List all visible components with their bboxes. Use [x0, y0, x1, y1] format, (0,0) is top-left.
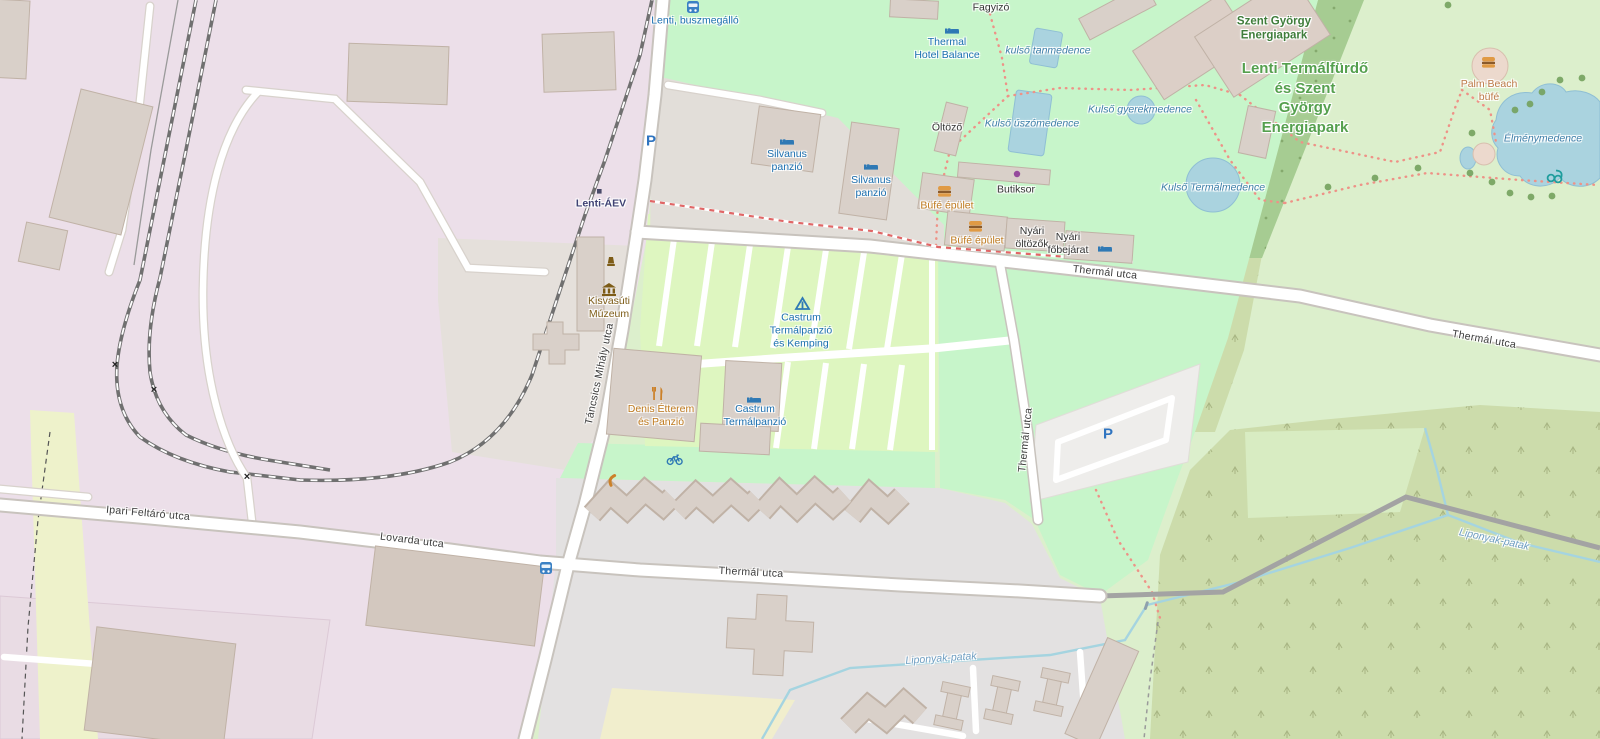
map-graphics — [0, 0, 1600, 739]
station-icon — [597, 189, 602, 194]
bus-icon — [540, 562, 552, 574]
shop-dot-icon — [1014, 171, 1020, 177]
bus-icon — [687, 1, 699, 13]
map-canvas[interactable]: Lenti, buszmegálló Thermal Hotel Balance… — [0, 0, 1600, 739]
